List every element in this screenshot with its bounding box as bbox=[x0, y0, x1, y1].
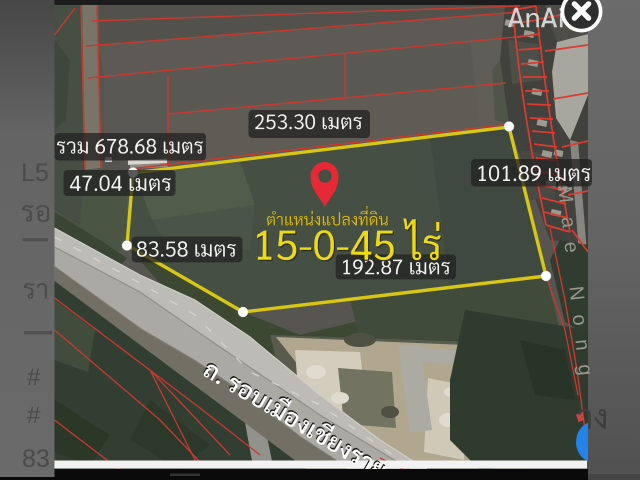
svg-text:L5: L5 bbox=[21, 159, 49, 187]
svg-text:#: # bbox=[27, 402, 41, 429]
svg-text:#: # bbox=[27, 364, 41, 391]
svg-text:83: 83 bbox=[22, 445, 50, 473]
